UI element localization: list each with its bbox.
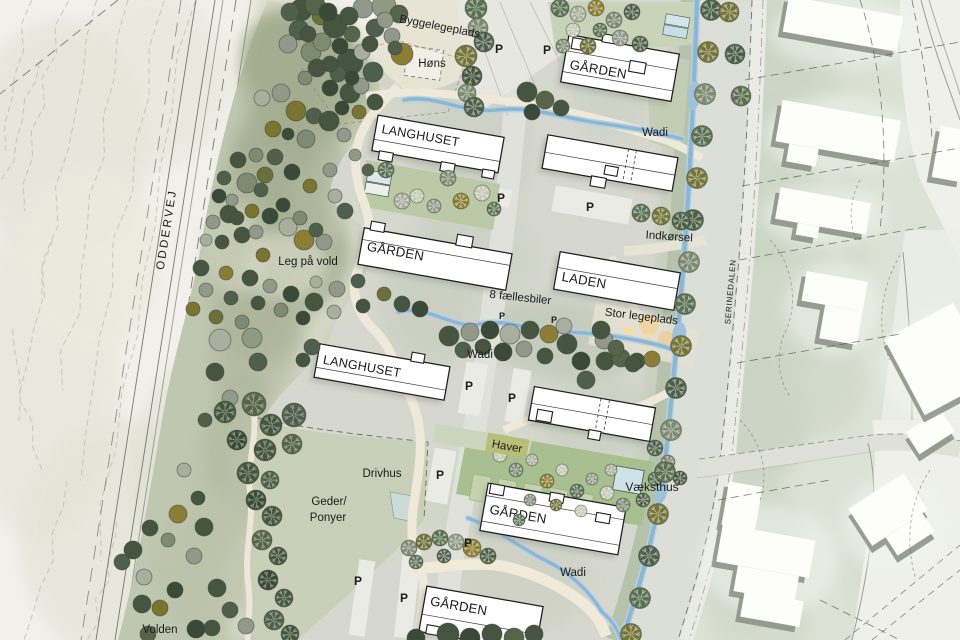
svg-text:Geder/: Geder/ [311,496,347,508]
svg-text:P: P [551,315,557,325]
svg-text:P: P [543,43,551,57]
svg-text:P: P [497,191,505,205]
svg-text:Væksthus: Væksthus [625,480,678,494]
svg-text:P: P [586,200,594,214]
svg-text:P: P [436,468,444,482]
svg-text:Volden: Volden [142,624,177,636]
svg-text:Wadi: Wadi [642,127,668,139]
svg-text:Høns: Høns [418,58,446,70]
svg-text:P: P [464,536,472,550]
svg-text:P: P [499,311,505,321]
svg-text:Drivhus: Drivhus [363,468,402,480]
svg-text:P: P [400,591,408,605]
svg-text:Wadi: Wadi [467,349,493,361]
svg-text:P: P [465,379,473,393]
svg-text:Ponyer: Ponyer [310,512,347,524]
svg-text:Wadi: Wadi [560,567,586,579]
svg-text:Leg på vold: Leg på vold [278,256,337,268]
svg-text:P: P [508,391,516,405]
svg-text:P: P [495,42,503,56]
svg-text:P: P [354,574,362,588]
